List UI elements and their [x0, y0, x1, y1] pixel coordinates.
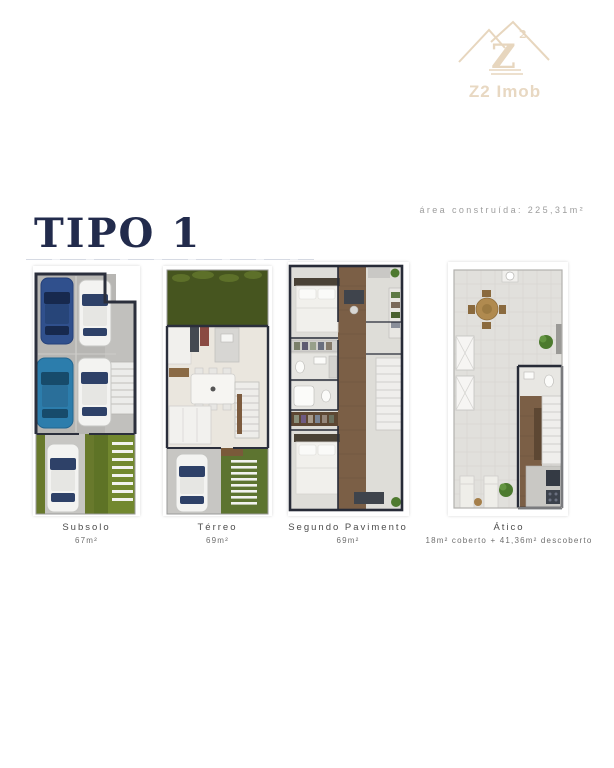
covered-area: [518, 366, 562, 508]
plan-area: 67m²: [13, 535, 160, 547]
built-area-label: área construída: 225,31m²: [419, 205, 585, 215]
terreo-plan-drawing: [163, 266, 272, 516]
car-teal: [37, 358, 73, 428]
car-white-2: [78, 358, 111, 426]
attic-cabinet: [534, 408, 542, 460]
stairs: [235, 382, 259, 438]
planter: [221, 448, 243, 456]
shelving: [389, 288, 402, 338]
bathroom-1: [290, 354, 338, 380]
brand-name: Z2 Imob: [432, 82, 578, 102]
page-title: TIPO 1: [34, 210, 201, 257]
plan-terreo: [163, 266, 272, 516]
title-underline: [26, 259, 314, 260]
plan-subsolo-frame: [33, 266, 140, 516]
plan-name: Segundo Pavimento: [268, 521, 428, 535]
attic-kitchen: [526, 466, 562, 508]
logo-monogram: Z: [491, 37, 516, 77]
attic-stairs: [542, 396, 562, 464]
plan-terreo-frame: [163, 266, 272, 516]
plan-area: 69m²: [268, 535, 428, 547]
logo-monogram-sup: 2: [519, 28, 527, 41]
caption-atico: Ático 18m² coberto + 41,36m² descoberto: [418, 521, 600, 547]
plan-name: Subsolo: [13, 521, 160, 535]
plan-area: 18m² coberto + 41,36m² descoberto: [418, 535, 600, 547]
dining-table: [191, 368, 235, 410]
plan-segundo-pavimento: [288, 262, 409, 516]
subsolo-plan-drawing: [33, 266, 140, 516]
brand-logo: Z 2 Z2 Imob: [432, 16, 578, 102]
floorplan-sheet: Z 2 Z2 Imob área construída: 225,31m² TI…: [0, 0, 614, 768]
stairs: [376, 358, 402, 430]
wardrobe-2: [290, 412, 338, 426]
top-cabinet: [368, 268, 390, 278]
bed-2: [294, 434, 340, 494]
plan-segundo-frame: [288, 262, 409, 516]
plant: [391, 269, 400, 278]
bed-1: [294, 278, 340, 332]
bathroom-2: [290, 382, 338, 410]
segundo-pavimento-plan-drawing: [288, 262, 409, 516]
caption-segundo-pavimento: Segundo Pavimento 69m²: [268, 521, 428, 547]
plan-name: Ático: [418, 521, 600, 535]
wardrobe-1: [290, 340, 338, 352]
side-block: [556, 324, 562, 354]
sideboard: [169, 368, 189, 377]
plan-atico: [448, 262, 568, 516]
car-navy: [41, 278, 73, 344]
plan-atico-frame: [448, 262, 568, 516]
atico-plan-drawing: [448, 262, 568, 516]
car-white: [176, 454, 208, 512]
car-white-3: [47, 444, 79, 512]
plan-subsolo: [33, 266, 140, 516]
caption-subsolo: Subsolo 67m²: [13, 521, 160, 547]
rooftop-unit: [502, 270, 518, 282]
z2-logo-icon: Z 2: [445, 16, 565, 80]
sofa: [169, 406, 211, 444]
